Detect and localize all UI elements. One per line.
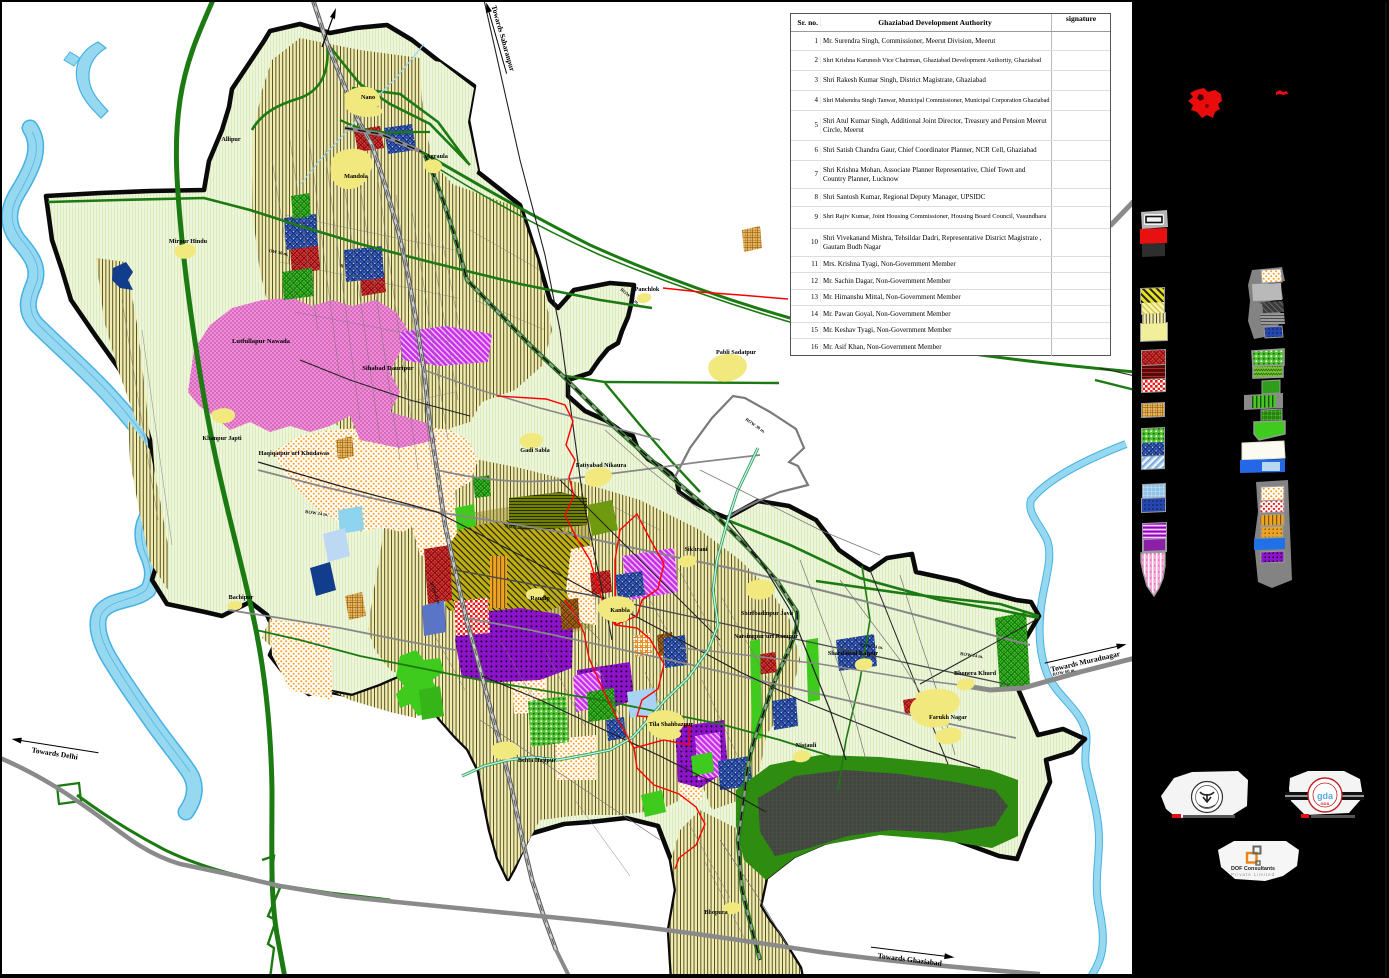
svg-text:gda: gda (1317, 791, 1334, 801)
svg-text:Agraula: Agraula (426, 153, 448, 160)
svg-text:GDA: GDA (1321, 801, 1330, 806)
svg-text:Bhopura: Bhopura (704, 909, 727, 916)
svg-text:Fatiyabad Nikaura: Fatiyabad Nikaura (576, 462, 626, 469)
svg-text:Farukh Nagar: Farukh Nagar (929, 714, 967, 721)
svg-text:Khanpur Japti: Khanpur Japti (202, 435, 242, 442)
svg-text:Behta Hajipur: Behta Hajipur (518, 757, 557, 764)
svg-text:Bachipur: Bachipur (229, 594, 254, 601)
svg-text:Nano: Nano (361, 94, 375, 101)
svg-text:Pabli Sadatpur: Pabli Sadatpur (716, 349, 756, 356)
svg-text:Mandola: Mandola (344, 173, 368, 180)
svg-text:Mirpur Hindu: Mirpur Hindu (169, 238, 208, 245)
svg-text:Haqiqatpur urf Khudawas: Haqiqatpur urf Khudawas (259, 450, 330, 457)
svg-text:Sihabad Dauripur: Sihabad Dauripur (362, 365, 414, 372)
svg-text:Allipur: Allipur (221, 136, 241, 143)
svg-text:Randip: Randip (530, 595, 550, 602)
svg-text:Sikhrani: Sikhrani (684, 546, 707, 553)
svg-text:Sharifabad Rajpur: Sharifabad Rajpur (828, 650, 879, 657)
svg-text:Narsingpur urf Rampur: Narsingpur urf Rampur (734, 633, 798, 640)
svg-text:Lutfullapur Nawada: Lutfullapur Nawada (232, 338, 291, 345)
svg-text:Tila Shahbazpur: Tila Shahbazpur (649, 721, 694, 728)
svg-text:Bhonera Khurd: Bhonera Khurd (954, 670, 997, 677)
svg-text:Nistauli: Nistauli (796, 742, 817, 749)
svg-text:Panchlok: Panchlok (635, 286, 660, 293)
svg-text:Shirfbadinpur Javli: Shirfbadinpur Javli (741, 610, 794, 617)
svg-text:Gadi Sabla: Gadi Sabla (520, 447, 549, 454)
svg-text:Private Limited: Private Limited (1231, 872, 1275, 877)
svg-text:Kanbla: Kanbla (610, 607, 630, 614)
